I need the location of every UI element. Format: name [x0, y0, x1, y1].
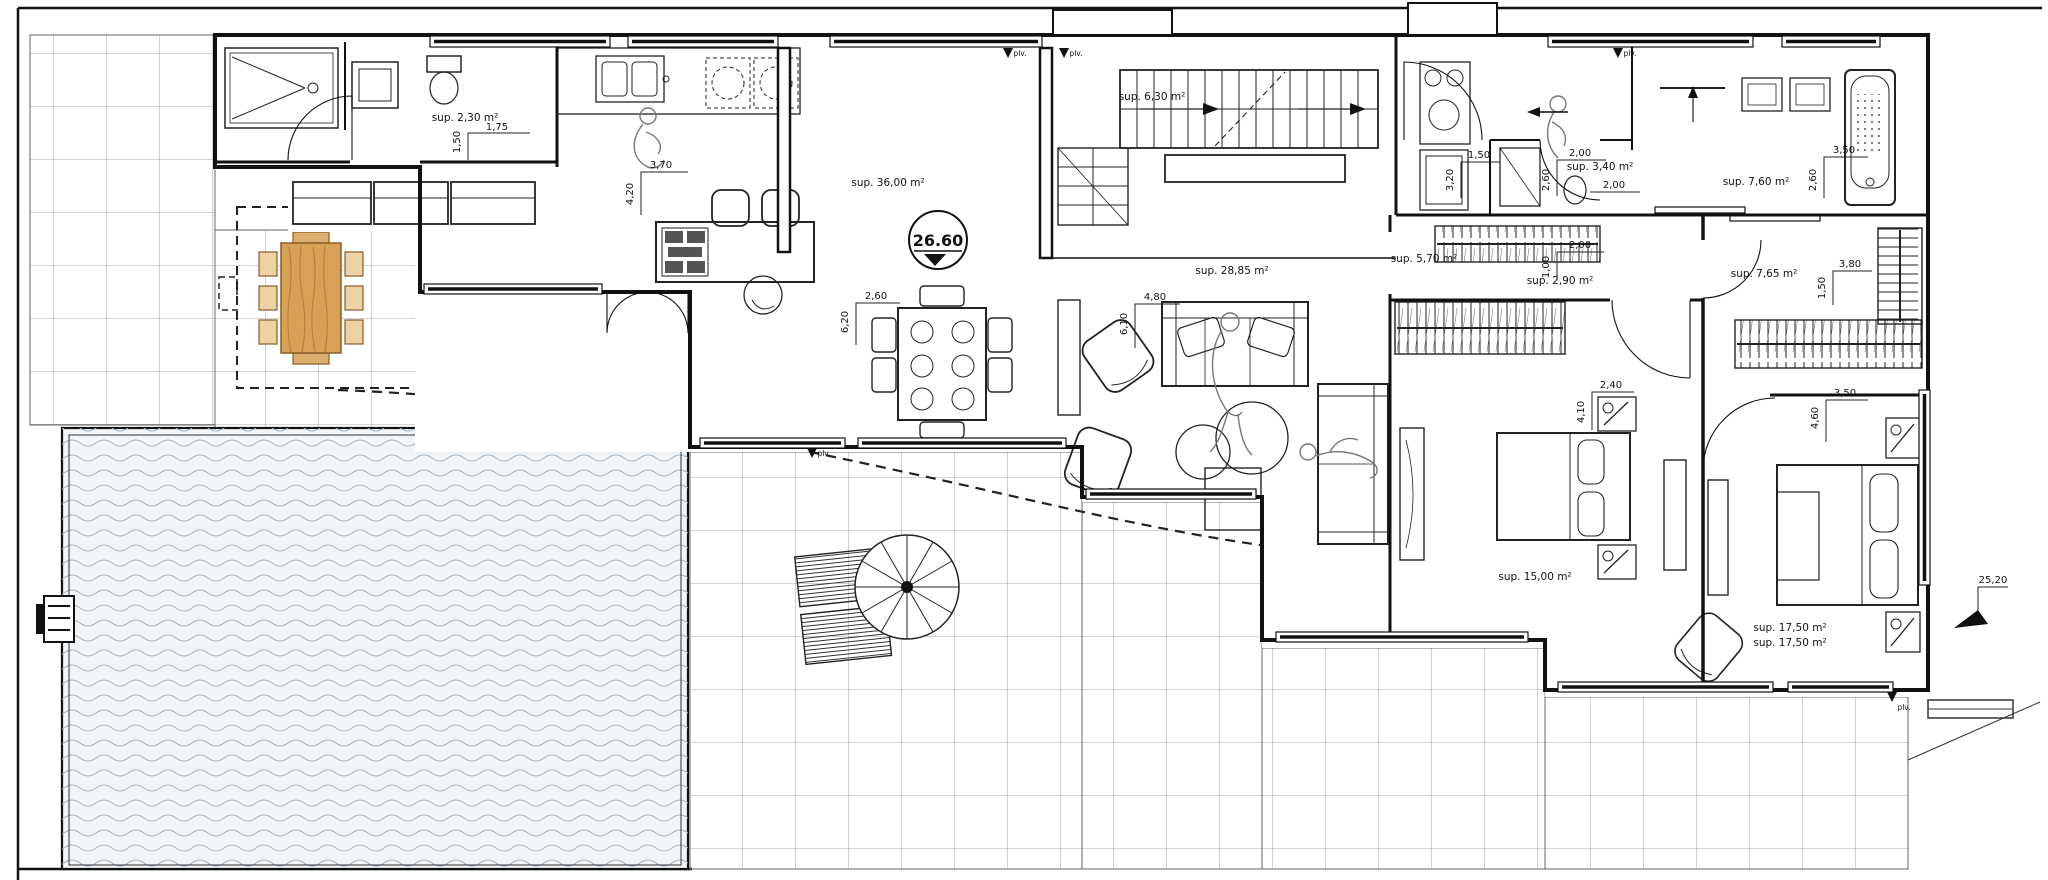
plv-label: plv.: [1069, 49, 1082, 58]
outdoor-wooden-table: [259, 232, 363, 364]
dim-kitchen-width: 3,70: [650, 160, 672, 171]
dim-bedroom2-height: 4,60: [1810, 407, 1821, 429]
floor-plan-page: sup. 2,30 m² sup. 36,00 m² sup. 6,30 m² …: [0, 0, 2048, 880]
room-label-bath-main: sup. 7,60 m²: [1723, 176, 1790, 188]
room-label-lobby: sup. 2,90 m²: [1527, 275, 1594, 287]
room-label-bedroom-2: sup. 17,50 m²: [1753, 637, 1826, 649]
dim-lounge-height: 6,10: [1119, 313, 1130, 335]
dim-wc-height: 1,50: [452, 131, 463, 153]
room-label-bath-small: sup. 3,40 m²: [1567, 161, 1634, 173]
floor-plan-drawing: sup. 2,30 m² sup. 36,00 m² sup. 6,30 m² …: [0, 0, 2048, 880]
plv-label: plv.: [1897, 703, 1910, 712]
room-label-kitchen-living: sup. 36,00 m²: [851, 177, 924, 189]
dim-bath-small-height: 2,60: [1541, 169, 1552, 191]
plv-label: plv.: [1013, 49, 1026, 58]
dim-bath-small-width: 2,00: [1569, 148, 1591, 159]
room-label-dressing: sup. 7,65 m²: [1731, 268, 1798, 280]
room-label-bedroom-2: sup. 17,50 m²: [1753, 622, 1826, 634]
dim-dressing-width: 3,80: [1839, 259, 1861, 270]
dim-site-level: 25,20: [1979, 575, 2008, 586]
bedroom1-wardrobe: [1395, 302, 1565, 354]
dim-bath-main-height: 2,60: [1808, 169, 1819, 191]
dim-lobby-width: 2,00: [1569, 240, 1591, 251]
dim-dining-width: 2,60: [865, 291, 887, 302]
dim-laundry-width: 1,50: [1468, 150, 1490, 161]
dressing-rack-south: [1735, 320, 1922, 368]
dim-lobby-height: 1,00: [1541, 256, 1552, 278]
dim-kitchen-height: 4,20: [625, 183, 636, 205]
dim-bedroom1-width: 2,40: [1600, 380, 1622, 391]
swimming-pool: [36, 428, 688, 869]
dim-dressing-height: 1,50: [1817, 277, 1828, 299]
spiral-staircase: [855, 535, 959, 639]
plv-label: plv.: [817, 449, 830, 458]
dressing-rack-east: [1878, 228, 1922, 324]
dim-laundry-height: 3,20: [1445, 169, 1456, 191]
room-label-bedroom-1: sup. 15,00 m²: [1498, 571, 1571, 583]
dim-wc-width: 1,75: [486, 122, 508, 133]
room-label-hall: sup. 5,70 m²: [1391, 253, 1458, 265]
level-marker-value: 26.60: [913, 231, 964, 250]
site-steps: [1908, 700, 2040, 760]
dim-dining-height: 6,20: [840, 311, 851, 333]
dim-hall-width: 2,00: [1603, 180, 1625, 191]
room-label-lounge: sup. 28,85 m²: [1195, 265, 1268, 277]
pool-ladder: [36, 596, 74, 642]
dim-bedroom1-height: 4,10: [1576, 401, 1587, 423]
dim-bedroom2-width: 3,50: [1834, 388, 1856, 399]
dim-bath-main-width: 3,50: [1833, 145, 1855, 156]
room-label-stairs: sup. 6,30 m²: [1119, 91, 1186, 103]
dim-lounge-width: 4,80: [1144, 292, 1166, 303]
plv-label: plv.: [1623, 49, 1636, 58]
